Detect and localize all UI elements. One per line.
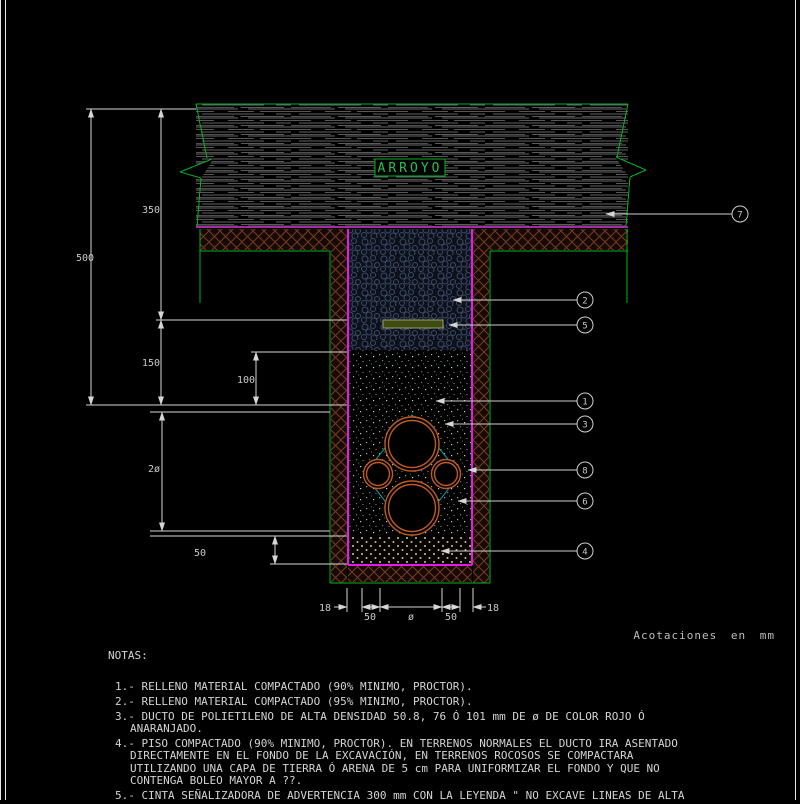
- callout-num-6: 6: [582, 498, 587, 508]
- duct-bottom-outer: [385, 481, 439, 535]
- backfill-95-gravel: [349, 229, 471, 350]
- duct-right-outer: [432, 460, 461, 489]
- duct-top-outer: [385, 417, 439, 471]
- dim-50-floor-label: 50: [194, 548, 206, 559]
- dim-2dia-label: 2ø: [148, 464, 160, 475]
- dim-50-right-label: 50: [445, 612, 457, 623]
- dim-500-label: 500: [76, 253, 94, 264]
- note-2: 2.- RELLENO MATERIAL COMPACTADO (95% MIN…: [106, 696, 776, 708]
- dim-350-label: 350: [142, 205, 160, 216]
- cad-canvas: { "drawing": { "arroyo_label": "ARROYO",…: [0, 0, 800, 800]
- arroyo-surface: ARROYO: [179, 104, 647, 227]
- bottom-dim-chain: [334, 588, 486, 612]
- dim-dia-label: ø: [408, 612, 414, 623]
- note-line: DIRECTAMENTE EN EL FONDO DE LA EXCAVACIÓ…: [106, 750, 776, 762]
- callout-num-2: 2: [582, 297, 587, 307]
- note-line: 1.- RELLENO MATERIAL COMPACTADO (90% MIN…: [106, 681, 776, 693]
- callout-num-4: 4: [582, 548, 587, 558]
- note-5: 5.- CINTA SEÑALIZADORA DE ADVERTENCIA 30…: [106, 790, 776, 802]
- dim-18-right-label: 18: [487, 603, 499, 614]
- note-line: 5.- CINTA SEÑALIZADORA DE ADVERTENCIA 30…: [106, 790, 776, 802]
- duct-left-outer: [364, 460, 393, 489]
- units-note: Acotaciones en mm: [633, 629, 775, 642]
- callout-num-8: 8: [582, 467, 587, 477]
- callout-num-5: 5: [582, 322, 587, 332]
- trench-wall-bottom: [348, 566, 472, 582]
- note-line: CONTENGA BOLEO MAYOR A ??.: [106, 775, 776, 787]
- note-line: ANARANJADO.: [106, 723, 776, 735]
- arroyo-label: ARROYO: [378, 161, 443, 176]
- callout-num-1: 1: [582, 398, 587, 408]
- note-line: 3.- DUCTO DE POLIETILENO DE ALTA DENSIDA…: [106, 711, 776, 723]
- note-4: 4.- PISO COMPACTADO (90% MINIMO, PROCTOR…: [106, 738, 776, 787]
- notes-block: NOTAS: 1.- RELLENO MATERIAL COMPACTADO (…: [106, 650, 776, 804]
- dim-18-left-label: 18: [319, 603, 331, 614]
- trench-wall-left: [331, 250, 347, 583]
- dim-50-left-label: 50: [364, 612, 376, 623]
- notes-title: NOTAS:: [106, 650, 776, 662]
- dim-100-label: 100: [237, 375, 255, 386]
- note-line: 2.- RELLENO MATERIAL COMPACTADO (95% MIN…: [106, 696, 776, 708]
- note-1: 1.- RELLENO MATERIAL COMPACTADO (90% MIN…: [106, 681, 776, 693]
- note-3: 3.- DUCTO DE POLIETILENO DE ALTA DENSIDA…: [106, 711, 776, 736]
- warning-tape: [383, 320, 443, 328]
- callout-num-3: 3: [582, 421, 587, 431]
- callout-num-7: 7: [737, 211, 742, 221]
- trench-section-drawing: ARROYO: [0, 0, 800, 650]
- dim-150-label: 150: [142, 358, 160, 369]
